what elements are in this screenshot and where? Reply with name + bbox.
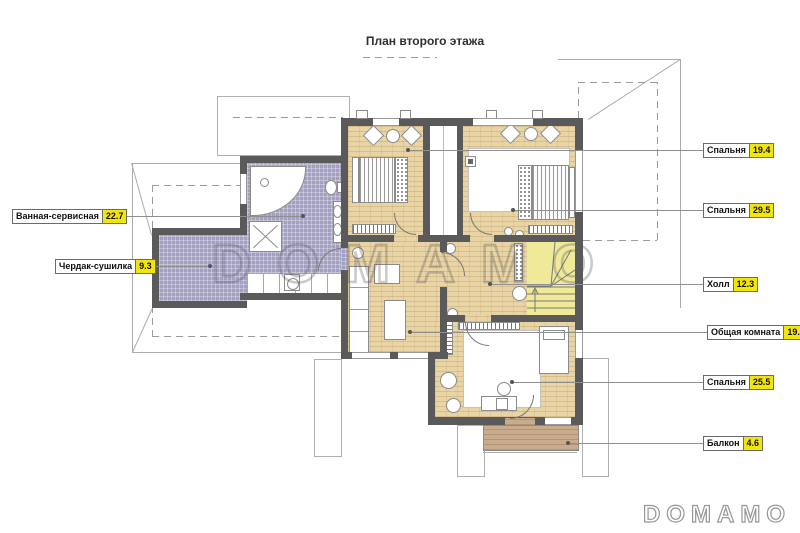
balcony-rail <box>483 452 577 453</box>
callout-dot <box>488 282 492 286</box>
callout-dot <box>566 441 570 445</box>
label-area-value: 4.6 <box>744 436 764 451</box>
floor-plan-canvas: План второго этажа <box>0 0 800 533</box>
label-name: Общая комната <box>707 325 784 340</box>
callout-line <box>512 382 703 383</box>
roof-diagonal-left-top <box>131 163 152 236</box>
callout-dot <box>510 380 514 384</box>
callout-dot <box>511 208 515 212</box>
label-name: Чердак-сушилка <box>55 259 136 274</box>
window <box>398 352 428 359</box>
roof-dashed-left-top <box>152 185 240 186</box>
roof-dashed-right-left <box>578 82 579 118</box>
watermark-center: DOMAMO <box>212 233 620 295</box>
bed1-foot-blanket <box>395 157 408 203</box>
callout-line <box>410 332 707 333</box>
toilet <box>325 180 337 195</box>
label-name: Спальня <box>703 375 750 390</box>
pouf <box>446 398 461 413</box>
label-name: Спальня <box>703 203 750 218</box>
roof-line-right <box>680 59 681 308</box>
label-area-value: 9.3 <box>136 259 156 274</box>
roof-dashed-right-right <box>657 82 658 240</box>
label-balcony: Балкон 4.6 <box>703 436 763 451</box>
roof-line-left <box>132 163 133 352</box>
callout-line <box>513 210 703 211</box>
window <box>373 118 399 126</box>
roof-dashed-left-v1 <box>152 185 153 228</box>
label-name: Холл <box>703 277 734 292</box>
bed2-pillows <box>518 165 532 220</box>
pouf <box>440 372 457 389</box>
roof-diagonal-right <box>588 59 681 120</box>
roof-line-left-top <box>132 163 240 164</box>
callout-dot <box>408 330 412 334</box>
window <box>575 330 583 358</box>
roof-dashed-right-top <box>578 82 657 83</box>
roof-outline-bottom-right <box>582 358 609 477</box>
label-name: Спальня <box>703 143 750 158</box>
callout-dot <box>301 214 305 218</box>
callout-dot <box>406 148 410 152</box>
label-attic-dryer: Чердак-сушилка 9.3 <box>55 259 156 274</box>
label-bedroom-1: Спальня 19.4 <box>703 143 774 158</box>
label-area-value: 12.3 <box>734 277 759 292</box>
desk-chair <box>497 382 511 396</box>
wall <box>240 156 348 163</box>
roof-dashed-top-left <box>233 117 343 118</box>
roof-line-left-bottom <box>132 352 341 353</box>
bed2-duvet <box>532 165 569 220</box>
watermark-logo: DOMAMO <box>643 501 791 529</box>
roof-outline-bottom-left <box>314 359 342 457</box>
callout-line <box>108 216 304 217</box>
label-bedroom-2: Спальня 29.5 <box>703 203 774 218</box>
balcony-deck <box>483 425 579 451</box>
label-area-value: 19.1 <box>784 325 800 340</box>
tv-unit <box>465 156 476 167</box>
label-common-room: Общая комната 19.1 <box>707 325 800 340</box>
label-hall: Холл 12.3 <box>703 277 758 292</box>
label-area-value: 22.7 <box>103 209 128 224</box>
roof-dashed-left-bottom <box>152 336 342 337</box>
wall-pillar <box>356 110 368 119</box>
closet-divider <box>443 126 444 236</box>
wall <box>152 301 247 308</box>
callout-line <box>568 443 703 444</box>
coffee-table <box>384 300 406 340</box>
wall-pillar <box>532 110 543 119</box>
wall-pillar <box>400 110 411 119</box>
callout-line <box>408 150 703 151</box>
bed1-headboard <box>352 157 359 203</box>
bathtub-drain <box>260 178 269 187</box>
wall <box>423 126 430 235</box>
roof-outline-top-left <box>217 96 350 156</box>
label-area-value: 19.4 <box>750 143 775 158</box>
callout-dot <box>208 264 212 268</box>
label-area-value: 29.5 <box>750 203 775 218</box>
label-bedroom-3: Спальня 25.5 <box>703 375 774 390</box>
roof-dashed-top <box>363 57 437 58</box>
page-title: План второго этажа <box>275 34 575 48</box>
label-area-value: 25.5 <box>750 375 775 390</box>
balcony-pillar-left <box>457 425 485 477</box>
window <box>575 150 583 212</box>
tv-screen <box>468 159 473 164</box>
door-opening <box>465 315 491 322</box>
window <box>473 118 533 126</box>
bed1-duvet <box>359 157 395 203</box>
desk-monitor <box>496 398 508 410</box>
round-table <box>524 127 538 141</box>
roof-diagonal-left-bottom <box>132 308 153 352</box>
label-name: Балкон <box>703 436 744 451</box>
window <box>240 174 247 204</box>
roof-line-top-right <box>558 59 680 60</box>
round-table <box>386 129 400 143</box>
wall <box>428 352 435 425</box>
label-name: Ванная-сервисная <box>12 209 103 224</box>
door-opening <box>505 418 535 425</box>
label-bathroom-service: Ванная-сервисная 22.7 <box>12 209 127 224</box>
wall <box>457 126 463 235</box>
window <box>352 352 390 359</box>
window <box>545 417 571 425</box>
callout-line <box>490 284 703 285</box>
roof-dashed-left-v2 <box>152 308 153 337</box>
